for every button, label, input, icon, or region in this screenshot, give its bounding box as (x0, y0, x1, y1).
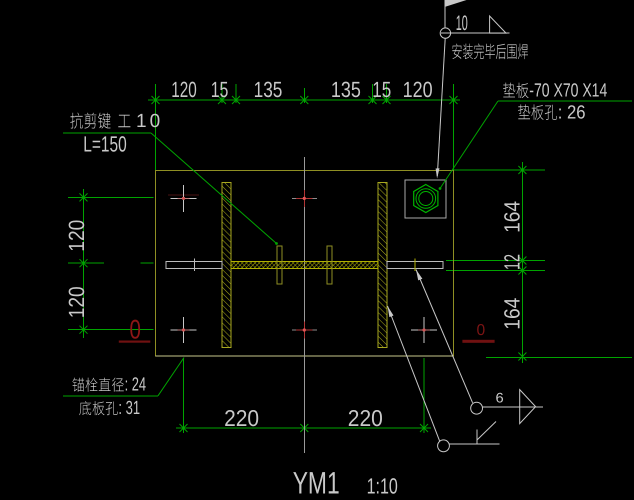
svg-text:120: 120 (64, 286, 89, 318)
svg-text:0: 0 (130, 315, 141, 345)
svg-text:-70 X70 X14: -70 X70 X14 (529, 81, 607, 102)
svg-text:10: 10 (136, 111, 163, 132)
svg-text:6: 6 (496, 389, 504, 405)
svg-text:220: 220 (348, 405, 383, 431)
svg-text:0: 0 (477, 322, 486, 339)
svg-text:120: 120 (64, 220, 89, 252)
svg-text:10: 10 (456, 12, 468, 35)
svg-text:: 24: : 24 (125, 374, 147, 395)
svg-text:120: 120 (171, 77, 197, 102)
svg-text:164: 164 (500, 298, 525, 330)
svg-text:YM1: YM1 (293, 465, 340, 500)
svg-text:135: 135 (331, 77, 361, 102)
svg-text:220: 220 (224, 405, 259, 431)
svg-text:L=150: L=150 (83, 132, 126, 157)
svg-text:135: 135 (254, 77, 283, 102)
svg-text:120: 120 (403, 77, 433, 102)
svg-text:12: 12 (500, 254, 525, 270)
svg-text:15: 15 (211, 77, 229, 102)
svg-text:: 31: : 31 (118, 398, 140, 419)
svg-text:15: 15 (372, 77, 391, 102)
svg-text:1:10: 1:10 (367, 473, 398, 498)
svg-text:: 26: : 26 (558, 103, 586, 124)
svg-text:164: 164 (500, 201, 525, 233)
